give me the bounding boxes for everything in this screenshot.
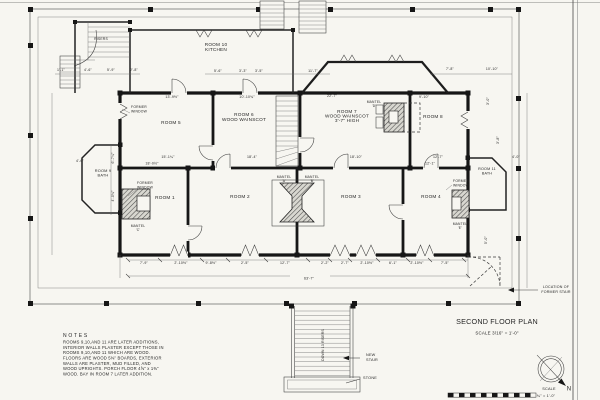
dimension-label: 18'-4": [247, 155, 258, 159]
notes-line: WOOD. BAY IN ROOM 7 LATER ADDITION.: [63, 371, 152, 376]
annotation-label: FORMER: [453, 179, 469, 183]
dimension-label: 9'-8½": [205, 261, 217, 265]
room-label-2: ROOM 2: [230, 194, 250, 199]
annotation-label: RISERS: [94, 37, 108, 41]
annotation-label: WINDOW: [137, 185, 154, 189]
compass-scale-label: SCALE: [542, 387, 556, 391]
annotation-label: FORMER: [131, 105, 147, 109]
dimension-label: 63'-7": [304, 277, 315, 281]
dimension-label: 4'-6": [76, 159, 85, 163]
notes-heading: N O T E S: [63, 333, 88, 339]
dimension-label: 3'-8": [496, 135, 500, 144]
dimension-label: 4'-6": [84, 68, 93, 72]
dimension-label: 22'-7": [327, 94, 338, 98]
annotation-label: NEW: [366, 353, 376, 357]
notes-line: ROOMS 9,10,AND 11 WHICH ARE WOOD.: [63, 350, 150, 355]
graphic-scale-bar: [448, 393, 536, 397]
dimension-label: 7'-8": [446, 67, 455, 71]
dimension-label: 10'-10¾": [239, 95, 255, 99]
chimney-mantel-e: [452, 190, 469, 218]
floor-plan-drawing: SECOND FLOOR PLAN SCALE 3/16" = 1'-0" SC…: [0, 0, 600, 400]
room-label-1: ROOM 1: [155, 195, 175, 200]
dimension-label: 2'-7": [341, 261, 350, 265]
dimension-label: 9'-10": [419, 95, 430, 99]
dimension-label: 2'-10½": [360, 261, 374, 265]
annotation-label: 'A': [282, 179, 286, 183]
drawing-scale: SCALE 3/16" = 1'-0": [475, 331, 519, 336]
annotation-label: WINDOW: [131, 109, 148, 113]
annotation-label: DOWN 13 RISERS: [321, 329, 325, 361]
dimension-label: 3'-3": [239, 69, 248, 73]
leader-arrowhead: [508, 288, 514, 293]
chimney-mantel-c: [122, 189, 150, 219]
drawing-title: SECOND FLOOR PLAN: [456, 317, 538, 326]
dimension-label: 18'-10": [350, 155, 363, 159]
dimension-label: 2'-10½": [410, 261, 424, 265]
annotation-label: 'E': [458, 226, 462, 230]
annotation-label: 'D': [372, 104, 376, 108]
notes-line: ROOMS 9,10,AND 11 ARE LATER ADDITIONS,: [63, 340, 159, 345]
north-arrow-icon: [537, 355, 566, 386]
dimension-label: 5'-6": [214, 69, 223, 73]
former-stair-outline: [468, 257, 538, 293]
room-label-7: 3'-7" HIGH: [335, 118, 359, 123]
dimension-label: 11'-7": [308, 69, 318, 73]
room-label-3: ROOM 3: [341, 194, 361, 199]
dimension-label: 7'-9": [140, 261, 149, 265]
dimension-label: 15'-1¼": [161, 155, 175, 159]
notes-line: WOOD UPRIGHTS. PORCH FLOOR 4⅝" x 1⅜": [63, 366, 159, 371]
dimension-label: 6'-7¼": [111, 152, 115, 164]
dimension-label: 6'-1": [389, 261, 398, 265]
dimension-label: 4'-0": [512, 155, 521, 159]
notes-line: INTERIOR WALLS PLASTER EXCEPT THOSE IN: [63, 345, 164, 350]
room-label-8: ROOM 8: [423, 114, 443, 119]
annotation-label: STAIR: [366, 358, 378, 362]
annotation-label: STONE: [363, 376, 377, 380]
dimension-label: 18'-0½": [145, 162, 159, 166]
room-label-6: WOOD WAINSCOT: [222, 117, 266, 122]
dimension-label: 3'-5": [255, 69, 264, 73]
drawing-sheet: SECOND FLOOR PLAN SCALE 3/16" = 1'-0" SC…: [0, 0, 600, 400]
dimension-label: 3'-0": [486, 96, 490, 105]
leader-arrowhead: [343, 356, 349, 360]
room-label-5: ROOM 5: [161, 120, 181, 125]
annotation-label: LOCATION OF: [543, 285, 570, 289]
annotation-label: 'C': [136, 228, 140, 232]
annotation-label: FORMER STAIR: [541, 290, 570, 294]
notes-line: FLOORS ARE WOOD 5⅜" BOARDS, EXTERIOR: [63, 356, 162, 361]
notes-block: N O T E S ROOMS 9,10,AND 11 ARE LATER AD…: [63, 333, 164, 376]
dimension-label: 12'-1": [425, 162, 436, 166]
room-label-4: ROOM 4: [421, 194, 441, 199]
annotation-label: WINDOW: [453, 183, 470, 187]
north-label: N: [567, 387, 572, 393]
dimension-label: 1'-1": [57, 68, 66, 72]
room-label-11: BATH: [482, 171, 492, 175]
title-block: SECOND FLOOR PLAN SCALE 3/16" = 1'-0" SC…: [456, 317, 571, 398]
room-label-10: KITCHEN: [205, 47, 227, 52]
dimension-label: 2'-2": [321, 261, 330, 265]
dimension-label: 4'-0¾": [111, 190, 115, 202]
dimension-label: 13'-9½": [165, 95, 179, 99]
dimension-label: 5'-0": [484, 235, 488, 244]
dimension-label: 12'-7": [280, 261, 291, 265]
annotation-label: FORMER: [137, 181, 153, 185]
dimension-label: 10'-10": [486, 67, 499, 71]
annotation-label: 'B': [310, 179, 314, 183]
dimension-label: 7'-5": [441, 261, 450, 265]
compass-scale-value: ¾" = 1'-0": [537, 394, 556, 398]
dimension-label: 2'-10½": [174, 261, 188, 265]
room-label-9: BATH: [98, 173, 109, 178]
dimension-label: 2'-5": [241, 261, 250, 265]
room-label-11: ROOM 11: [478, 167, 496, 171]
dimension-label: 12'-7": [433, 155, 444, 159]
notes-line: WALLS ARE PLASTER, MUD FILLED, AND: [63, 361, 151, 366]
dimension-label: 5'-9": [107, 68, 116, 72]
dimension-label: 2'-8": [130, 68, 139, 72]
